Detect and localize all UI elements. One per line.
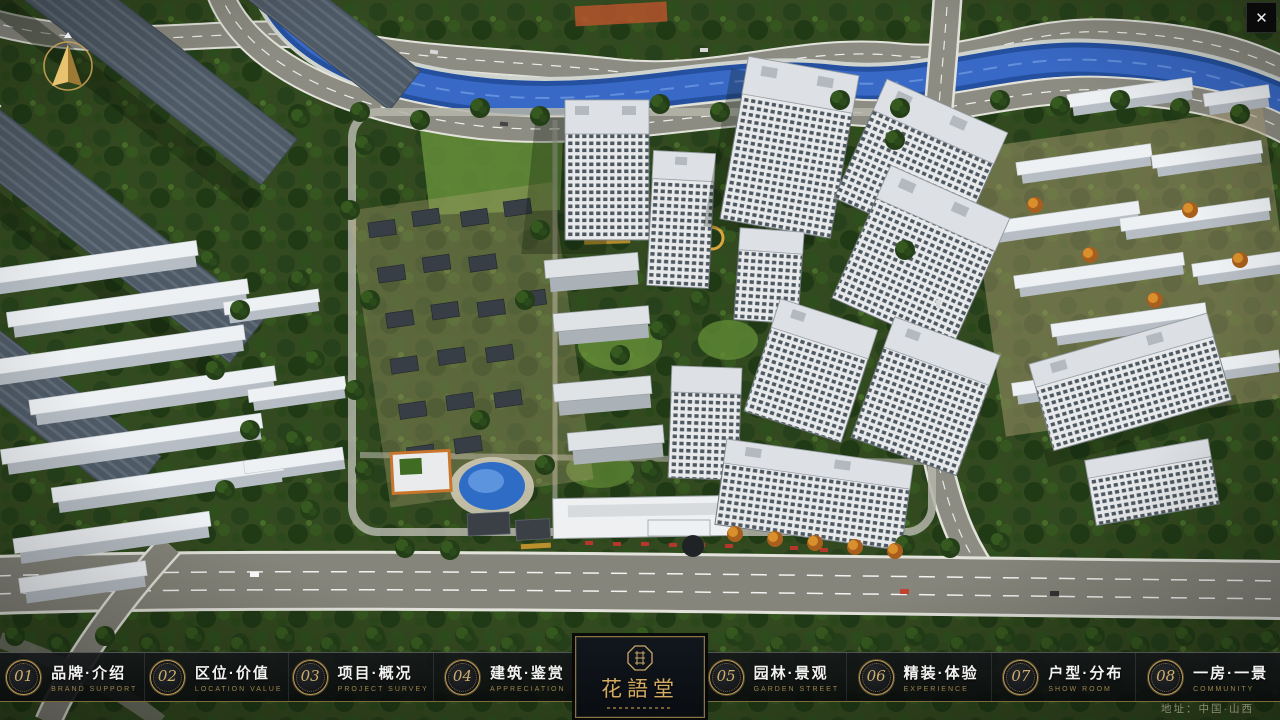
nav-item-floorplan-distribution[interactable]: 07 户型·分布 SHOW ROOM	[992, 653, 1137, 701]
close-button[interactable]: ✕	[1246, 2, 1277, 33]
seal-emblem-icon	[627, 645, 653, 671]
logo-subtext-line	[607, 707, 673, 709]
nav-number-03: 03	[301, 667, 320, 685]
nav-label-zh: 品牌·介绍	[51, 662, 126, 683]
nav-number-04: 04	[453, 667, 472, 685]
nav-number-badge-02: 02	[150, 660, 185, 695]
nav-number-badge-03: 03	[293, 660, 328, 695]
nav-number-07: 07	[1011, 667, 1030, 685]
nav-group-left: 01 品牌·介绍 BRAND SUPPORT 02 区位·价值 LOCATION…	[0, 653, 578, 701]
nav-item-location-value[interactable]: 02 区位·价值 LOCATION VALUE	[145, 653, 290, 701]
nav-label-zh: 园林·景观	[754, 662, 829, 683]
nav-label-zh: 建筑·鉴赏	[490, 662, 565, 683]
nav-number-08: 08	[1156, 667, 1175, 685]
nav-label-en: LOCATION VALUE	[195, 686, 283, 693]
nav-number-badge-06: 06	[859, 660, 894, 695]
nav-number-badge-05: 05	[709, 660, 744, 695]
nav-item-room-view[interactable]: 08 一房·一景 COMMUNITY	[1136, 653, 1280, 701]
masterplan-render	[0, 0, 1280, 720]
nav-item-architecture[interactable]: 04 建筑·鉴赏 APPRECIATION	[434, 653, 579, 701]
nav-number-badge-04: 04	[445, 660, 480, 695]
nav-number-badge-07: 07	[1003, 660, 1038, 695]
nav-item-interior-experience[interactable]: 06 精装·体验 EXPERIENCE	[847, 653, 992, 701]
nav-label-en: EXPERIENCE	[904, 686, 969, 693]
nav-number-badge-01: 01	[6, 660, 41, 695]
nav-label-zh: 一房·一景	[1193, 662, 1268, 683]
nav-number-05: 05	[717, 667, 736, 685]
nav-number-badge-08: 08	[1148, 660, 1183, 695]
nav-item-project-survey[interactable]: 03 项目·概况 PROJECT SURVEY	[289, 653, 434, 701]
nav-label-en: APPRECIATION	[490, 686, 566, 693]
nav-item-brand-intro[interactable]: 01 品牌·介绍 BRAND SUPPORT	[0, 653, 145, 701]
nav-label-zh: 精装·体验	[904, 662, 979, 683]
nav-item-garden-landscape[interactable]: 05 园林·景观 GARDEN STREET	[702, 653, 847, 701]
app-window: ✕ 01 品牌·介绍 BRAND SUPPORT 02 区位·价值 LOCATI…	[0, 0, 1280, 720]
nav-label-en: SHOW ROOM	[1048, 686, 1112, 693]
nav-number-02: 02	[158, 667, 177, 685]
nav-number-01: 01	[14, 667, 33, 685]
nav-label-zh: 户型·分布	[1048, 662, 1123, 683]
project-logo-title: 花語堂	[601, 673, 679, 703]
address-label: 地址：中国·山西	[1161, 701, 1254, 716]
nav-label-zh: 项目·概况	[338, 662, 413, 683]
nav-label-en: BRAND SUPPORT	[51, 686, 137, 693]
project-logo-panel[interactable]: 花語堂	[575, 636, 705, 718]
nav-label-en: PROJECT SURVEY	[338, 686, 429, 693]
nav-label-zh: 区位·价值	[195, 662, 270, 683]
nav-label-en: COMMUNITY	[1193, 686, 1254, 693]
compass-icon	[38, 32, 98, 96]
nav-group-right: 05 园林·景观 GARDEN STREET 06 精装·体验 EXPERIEN…	[702, 653, 1280, 701]
nav-label-en: GARDEN STREET	[754, 686, 840, 693]
nav-number-06: 06	[867, 667, 886, 685]
